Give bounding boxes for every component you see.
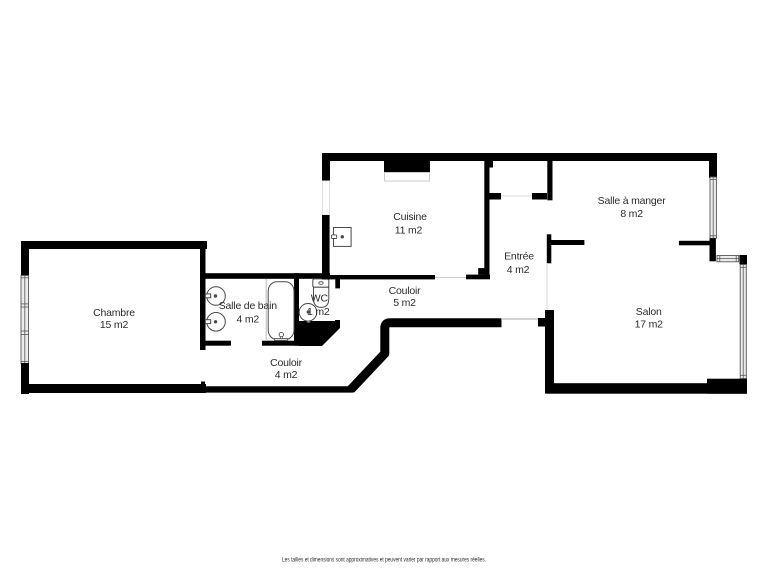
svg-text:8 m2: 8 m2 (620, 208, 643, 220)
svg-text:4 m2: 4 m2 (275, 369, 298, 381)
svg-text:Chambre: Chambre (93, 307, 135, 319)
svg-text:Salle à manger: Salle à manger (598, 195, 667, 207)
svg-text:Entrée: Entrée (504, 251, 534, 263)
svg-text:Salon: Salon (636, 306, 662, 318)
svg-text:Cuisine: Cuisine (393, 211, 427, 223)
svg-text:15 m2: 15 m2 (100, 319, 129, 331)
svg-text:Couloir: Couloir (270, 357, 303, 369)
svg-text:5 m2: 5 m2 (393, 297, 416, 309)
svg-text:1 m2: 1 m2 (307, 306, 330, 318)
svg-text:11 m2: 11 m2 (395, 225, 423, 237)
svg-text:4 m2: 4 m2 (237, 314, 260, 326)
svg-text:17 m2: 17 m2 (635, 319, 664, 331)
svg-text:Salle de bain: Salle de bain (219, 300, 277, 312)
svg-text:Couloir: Couloir (389, 285, 422, 297)
svg-text:4 m2: 4 m2 (507, 264, 530, 276)
svg-text:WC: WC (311, 293, 329, 305)
svg-text:Les tailles et dimensions sont: Les tailles et dimensions sont approxima… (282, 558, 486, 564)
